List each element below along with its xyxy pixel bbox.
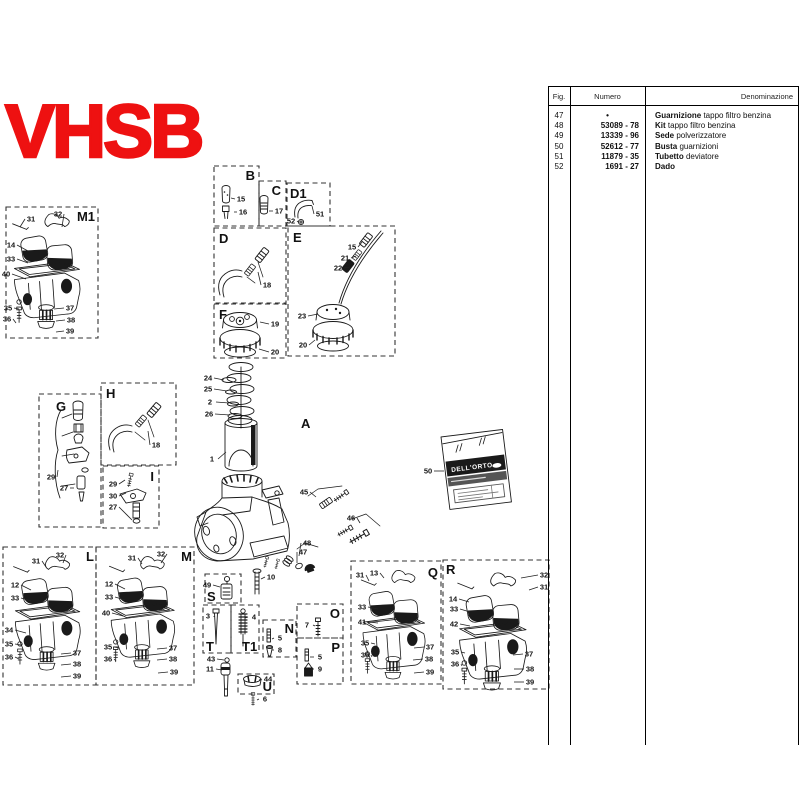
callout-18: 18 [152,441,160,450]
cell-fig: 52 [548,162,570,172]
callout-leader-42 [460,624,470,626]
callout-16: 16 [239,208,247,217]
jet-parts-c [260,196,268,214]
callout-15: 15 [237,195,245,204]
callout-12: 12 [11,581,19,590]
callout-leader-18 [258,272,261,285]
cell-numero: 13339 - 96 [570,131,639,141]
cone-8-part [267,646,273,657]
cell-denominazione: Busta guarnizioni [655,142,718,152]
callout-leader-38 [157,659,167,660]
section-label-f: F [219,307,227,322]
callout-37: 37 [66,304,74,313]
col-header-fig: Fig. [548,92,570,101]
callout-leader-35 [371,643,375,644]
callout-38: 38 [169,655,177,664]
callout-leader-31 [529,587,538,590]
callout-42: 42 [450,620,458,629]
table-row-fig-48: 4853089 - 78Kit tappo filtro benzina [548,121,799,131]
callout-43: 43 [207,655,215,664]
section-label-b: B [246,168,255,183]
callout-11: 11 [206,665,214,674]
callout-leader-36 [461,664,462,666]
cell-fig: 50 [548,142,570,152]
callout-37: 37 [73,649,81,658]
callout-leader-2 [216,402,229,403]
callout-29: 29 [109,480,117,489]
section-label-a: A [301,416,311,431]
col-header-numero: Numero [570,92,645,101]
callout-14: 14 [449,595,458,604]
callout-leader-14 [17,245,28,251]
callout-32: 32 [56,551,64,560]
screw-7-part [316,618,321,636]
callout-40: 40 [102,609,110,618]
callout-32: 32 [54,210,62,219]
callout-47: 47 [299,548,307,557]
callout-leader-13 [380,573,384,578]
callout-3: 3 [206,612,210,621]
screw-6-part [251,693,255,706]
cell-numero: 53089 - 78 [570,121,639,131]
seat-49-part [221,576,232,599]
callout-leader-29 [57,470,58,477]
float-bowl-assembly-r [458,573,527,690]
cell-denominazione: Kit tappo filtro benzina [655,121,736,131]
callout-52: 52 [287,217,295,226]
section-label-r: R [446,562,456,577]
callout-25: 25 [204,385,212,394]
section-label-i: I [150,469,154,484]
callout-38: 38 [67,316,75,325]
table-divider-numero [645,86,646,745]
ring-43-part [225,658,229,662]
slide-spring-assembly [222,363,257,472]
callout-leader-31 [366,575,369,581]
callout-44: 44 [264,675,273,684]
callout-leader-19 [260,322,269,324]
callout-35: 35 [5,640,13,649]
callout-18: 18 [263,281,271,290]
callout-49: 49 [203,581,211,590]
callout-39: 39 [73,672,81,681]
callout-21: 21 [341,254,349,263]
callout-33: 33 [11,594,19,603]
cap-44-part [244,676,262,687]
table-border-left [548,86,549,745]
table-row-fig-51: 5111879 - 35Tubetto deviatore [548,152,799,162]
callout-26: 26 [205,410,213,419]
callout-leader-15 [231,198,235,199]
callout-17: 17 [275,207,283,216]
callout-5: 5 [318,653,322,662]
callout-leader-36 [371,655,372,657]
callout-34: 34 [5,626,14,635]
table-row-fig-47: 47•Guarnizione tappo filtro benzina [548,111,799,121]
callout-leader-38 [56,320,65,321]
callout-36: 36 [3,315,11,324]
cell-fig: 48 [548,121,570,131]
callout-33: 33 [358,603,366,612]
callout-4: 4 [252,613,257,622]
callout-31: 31 [27,215,35,224]
callout-leader-43 [217,659,224,660]
cell-denominazione: Dado [655,162,675,172]
callout-leader-37 [61,653,71,654]
section-label-m1: M1 [77,209,95,224]
callout-51: 51 [316,210,324,219]
callout-24: 24 [204,374,213,383]
catalog-page: VHSB [0,0,800,800]
callout-27: 27 [109,503,117,512]
callout-leader-51 [312,206,314,214]
callout-12: 12 [105,580,113,589]
section-label-e: E [293,230,302,245]
callout-leader-36 [13,319,16,323]
table-divider-fig [570,86,571,745]
callout-36: 36 [361,651,369,660]
callout-leader-10 [261,577,265,579]
tube-and-jets-d [219,247,270,297]
col-header-denominazione: Denominazione [741,92,793,101]
callout-15: 15 [348,243,356,252]
callout-13: 13 [370,569,378,578]
callout-leader-46 [357,518,360,523]
callout-39: 39 [426,668,434,677]
callout-leader-29 [119,480,125,484]
callout-leader-37 [157,648,167,649]
callout-33: 33 [7,255,15,264]
callout-leader-39 [61,676,71,677]
atomizer-11-part [221,663,230,696]
callout-20: 20 [299,341,307,350]
callout-22: 22 [334,264,342,273]
callout-leader-39 [158,672,168,673]
float-bowl-assembly-q [361,570,425,678]
section-label-d1: D1 [290,186,307,201]
callout-37: 37 [525,650,533,659]
table-rows: 47•Guarnizione tappo filtro benzina48530… [548,111,799,172]
section-label-p: P [331,640,340,655]
callout-33: 33 [450,605,458,614]
callout-leader-49 [213,585,220,587]
section-label-m: M [181,549,192,564]
callout-41: 41 [358,618,366,627]
callout-leader-37 [54,308,64,309]
section-box-g [39,394,101,527]
callout-leader-37 [513,654,523,655]
section-label-g: G [56,399,66,414]
table-border-right [798,86,799,745]
callout-leader-25 [214,389,227,391]
callout-45: 45 [300,488,308,497]
callout-leader-52 [297,221,298,222]
cell-numero: • [570,111,645,121]
callout-38: 38 [425,655,433,664]
callout-31: 31 [32,557,40,566]
callout-35: 35 [361,639,369,648]
callout-leader-38 [61,664,71,665]
callout-35: 35 [451,648,459,657]
section-label-q: Q [428,565,438,580]
callout-33: 33 [105,593,113,602]
cell-fig: 47 [548,111,570,121]
callout-37: 37 [426,643,434,652]
callout-leader-44 [259,679,262,680]
gasket-packet: DELL'ORTO [441,429,511,509]
section-label-s: S [207,589,216,604]
cell-denominazione: Sede polverizzatore [655,131,726,141]
callout-39: 39 [526,678,534,687]
jet-9-part [305,663,313,676]
callout-6: 6 [263,695,267,704]
callout-leader-12 [21,585,31,590]
callout-leader-39 [414,672,424,673]
callout-38: 38 [73,660,81,669]
section-label-n: N [285,621,294,636]
callout-40: 40 [2,270,10,279]
callout-35: 35 [4,304,12,313]
callout-37: 37 [169,644,177,653]
callout-leader-27 [119,507,132,520]
callout-leader-6 [257,699,259,700]
callout-2: 2 [208,398,212,407]
callout-50: 50 [424,467,432,476]
screw-set-45 [308,486,349,509]
callout-38: 38 [526,665,534,674]
callout-14: 14 [7,241,16,250]
cell-denominazione: Guarnizione tappo filtro benzina [655,111,771,121]
callout-20: 20 [271,348,279,357]
section-label-t: T [206,639,214,654]
callout-36: 36 [104,655,112,664]
cell-fig: 51 [548,152,570,162]
screw-set-46 [337,514,380,545]
callout-31: 31 [540,583,548,592]
callout-leader-18 [148,431,150,445]
callout-7: 7 [305,621,309,630]
callout-32: 32 [157,550,165,559]
table-header-rule [548,105,799,106]
pin-5-part-n [267,629,271,642]
section-label-t1: T1 [242,639,257,654]
section-boxes-layer: M1BCD1DEFGHIALMSTT1NOPUQR [3,166,549,694]
section-label-c: C [272,183,282,198]
callout-leader-26 [215,414,230,415]
cell-numero: 52612 - 77 [570,142,639,152]
callout-30: 30 [109,492,117,501]
callout-leader-31 [20,219,25,227]
float-bowl-assembly-m [109,557,174,668]
cell-denominazione: Tubetto deviatore [655,152,719,162]
callout-39: 39 [66,327,74,336]
callout-leader-39 [56,331,64,332]
callout-19: 19 [271,320,279,329]
section-label-h: H [106,386,115,401]
callout-leader-33 [460,609,470,612]
callout-31: 31 [128,554,136,563]
table-row-fig-49: 4913339 - 96Sede polverizzatore [548,131,799,141]
callout-9: 9 [318,665,322,674]
callout-32: 32 [540,571,548,580]
callout-5: 5 [278,634,282,643]
callout-36: 36 [5,653,13,662]
callout-leader-20 [259,349,269,352]
callout-leader-32 [521,575,538,578]
callout-35: 35 [104,643,112,652]
callout-leader-12 [115,584,125,589]
callout-leader-35 [14,308,19,309]
section-label-d: D [219,231,228,246]
callout-39: 39 [170,668,178,677]
parts-table: Fig. Numero Denominazione 47•Guarnizione… [548,86,799,745]
callout-8: 8 [278,646,282,655]
callout-leader-35 [15,644,21,645]
pin-5-part-p [305,649,309,661]
callout-27: 27 [60,484,68,493]
callout-46: 46 [347,514,355,523]
cell-numero: 11879 - 35 [570,152,639,162]
main-jet-parts-b [222,186,230,219]
section-label-o: O [330,606,340,621]
callout-leader-40 [12,274,26,279]
table-top-rule [548,86,799,87]
callout-36: 36 [451,660,459,669]
callout-leader-41 [368,622,378,623]
cell-fig: 49 [548,131,570,141]
callout-31: 31 [356,571,364,580]
callout-leader-37 [414,647,424,648]
section-box-e [288,226,395,356]
callout-10: 10 [267,573,275,582]
callout-23: 23 [298,312,306,321]
callout-48: 48 [303,539,311,548]
callout-leader-7 [313,625,315,626]
section-label-l: L [86,549,94,564]
callout-leader-5 [272,638,274,639]
cell-numero: 1691 - 27 [570,162,639,172]
table-row-fig-50: 5052612 - 77Busta guarnizioni [548,142,799,152]
callout-leader-20 [309,340,315,345]
callout-29: 29 [47,473,55,482]
callout-1: 1 [210,455,214,464]
table-row-fig-52: 521691 - 27Dado [548,162,799,172]
